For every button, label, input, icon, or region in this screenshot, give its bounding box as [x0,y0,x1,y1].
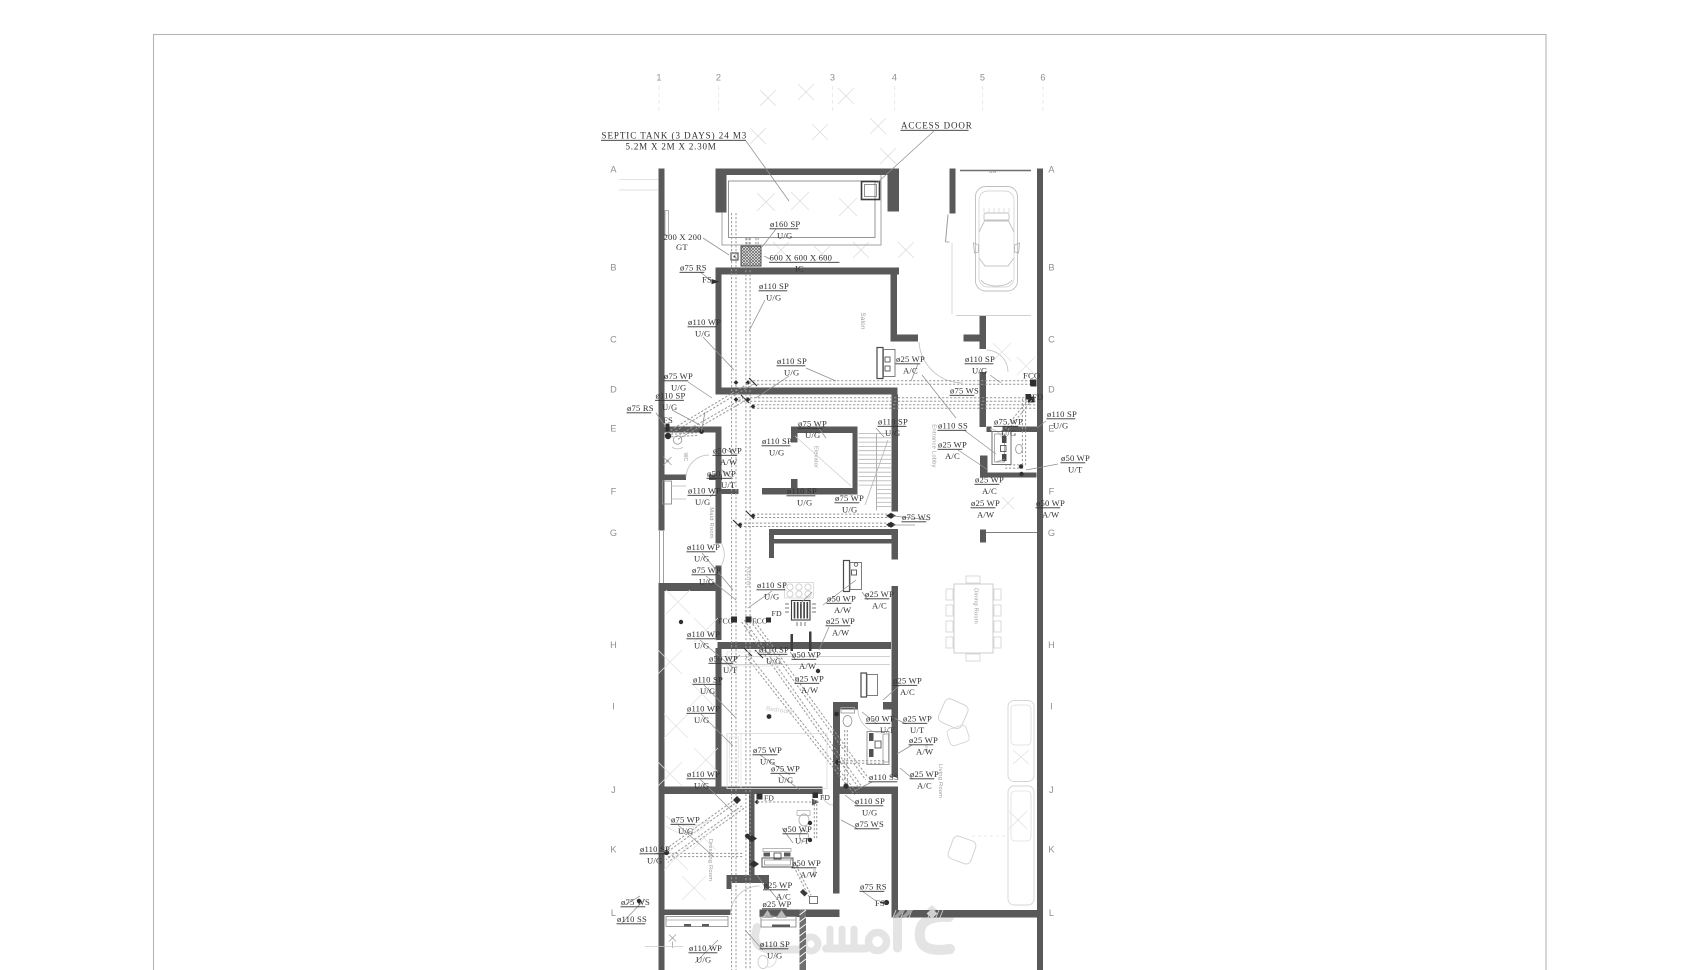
svg-text:A/W: A/W [832,628,850,638]
svg-text:3: 3 [830,73,835,83]
svg-text:J: J [1049,785,1054,795]
svg-text:U/G: U/G [778,775,793,785]
svg-text:ø110 SP: ø110 SP [759,645,789,655]
svg-text:Salon: Salon [859,312,866,330]
svg-text:ø110 WP: ø110 WP [687,769,720,779]
svg-text:ø50 WP: ø50 WP [783,824,812,834]
svg-text:U/G: U/G [777,231,792,241]
svg-text:A/W: A/W [799,661,817,671]
svg-text:ø110 SP: ø110 SP [640,844,670,854]
svg-text:ø50 WP: ø50 WP [827,594,856,604]
svg-text:ø75 WP: ø75 WP [664,371,693,381]
svg-text:G: G [1048,528,1055,538]
svg-text:WC: WC [682,453,688,462]
svg-text:U/G: U/G [972,366,987,376]
svg-text:6: 6 [1040,73,1045,83]
svg-text:ø110 SP: ø110 SP [855,796,885,806]
svg-text:FCO: FCO [752,617,768,626]
svg-text:U/G: U/G [694,715,709,725]
svg-text:I: I [1050,702,1053,712]
svg-text:D: D [1048,385,1055,395]
svg-text:I: I [612,702,615,712]
svg-text:U/G: U/G [766,293,781,303]
svg-text:A/C: A/C [945,451,960,461]
svg-text:U/T: U/T [723,665,738,675]
svg-text:FS: FS [875,898,885,908]
svg-text:ø50 WP: ø50 WP [1036,498,1065,508]
svg-text:ø25 WP: ø25 WP [795,674,824,684]
svg-text:Entrance Lobby: Entrance Lobby [931,424,937,467]
svg-text:ø50 WP: ø50 WP [709,654,738,664]
svg-text:ø110 SS: ø110 SS [869,772,899,782]
svg-text:ø75 RS: ø75 RS [680,263,707,273]
svg-text:H: H [610,640,617,650]
svg-text:FCO: FCO [1023,371,1040,381]
svg-text:U/G: U/G [1001,428,1016,438]
svg-text:U/G: U/G [767,951,782,961]
svg-text:U/G: U/G [862,808,877,818]
svg-text:A/C: A/C [872,601,887,611]
svg-text:ø110 WP: ø110 WP [687,704,720,714]
svg-text:200 X 200: 200 X 200 [664,232,702,242]
svg-text:SEPTIC TANK (3 DAYS) 24 M3: SEPTIC TANK (3 DAYS) 24 M3 [602,131,748,141]
svg-text:ø110 WP: ø110 WP [688,317,721,327]
svg-text:ø25 WP: ø25 WP [893,676,922,686]
svg-text:A/C: A/C [903,366,918,376]
svg-text:ø25 WP: ø25 WP [896,354,925,364]
svg-text:GT: GT [676,242,688,252]
svg-text:ø50 WP: ø50 WP [792,858,821,868]
svg-text:A: A [1048,165,1055,175]
svg-text:U/T: U/T [1068,465,1083,475]
svg-text:Dining Room: Dining Room [973,588,979,624]
svg-text:ø25 WP: ø25 WP [763,899,792,909]
svg-text:J: J [611,785,616,795]
svg-text:C: C [1048,335,1055,345]
svg-text:ø110 SP: ø110 SP [1047,409,1077,419]
svg-text:ø110 SP: ø110 SP [656,391,686,401]
svg-text:ø160 SP: ø160 SP [770,219,800,229]
svg-text:ø75 WS: ø75 WS [855,819,884,829]
svg-text:5.2M X 2M X 2.30M: 5.2M X 2M X 2.30M [626,142,717,152]
svg-text:U/G: U/G [769,448,784,458]
svg-text:ø75 WP: ø75 WP [835,493,864,503]
svg-text:U/G: U/G [696,955,711,965]
svg-text:B: B [1048,263,1054,273]
svg-text:U/G: U/G [695,329,710,339]
svg-text:A/W: A/W [834,605,852,615]
svg-text:ø50 WP: ø50 WP [1061,453,1090,463]
svg-text:D: D [610,385,617,395]
svg-text:ø25 WP: ø25 WP [826,616,855,626]
svg-text:U/G: U/G [662,402,677,412]
svg-text:2: 2 [716,73,721,83]
svg-text:ø50 WP: ø50 WP [866,714,895,724]
svg-text:ø75 WS: ø75 WS [950,386,979,396]
svg-text:U/G: U/G [766,656,781,666]
svg-text:5: 5 [980,73,985,83]
svg-text:ø50 WP: ø50 WP [707,469,736,479]
svg-text:1: 1 [656,73,661,83]
svg-text:U/G: U/G [695,497,710,507]
svg-text:U/G: U/G [784,368,799,378]
svg-text:ø50 WP: ø50 WP [792,650,821,660]
svg-text:U/G: U/G [1053,421,1068,431]
svg-text:U/G: U/G [885,428,900,438]
svg-text:ø50 WP: ø50 WP [713,446,742,456]
svg-text:ø110 SP: ø110 SP [777,356,807,366]
svg-text:L: L [611,908,616,918]
svg-text:ø25 WP: ø25 WP [971,498,1000,508]
svg-text:Kitchen: Kitchen [745,567,751,588]
svg-text:U/T: U/T [880,725,895,735]
svg-text:A/W: A/W [1042,510,1060,520]
svg-text:ACCESS DOOR: ACCESS DOOR [901,121,973,131]
svg-text:ø110 WP: ø110 WP [687,629,720,639]
svg-text:L: L [1049,908,1054,918]
svg-text:A/W: A/W [916,747,934,757]
svg-text:A: A [610,165,617,175]
svg-text:A/C: A/C [917,781,932,791]
svg-text:ø110 SP: ø110 SP [760,939,790,949]
svg-text:ø75 RS: ø75 RS [627,403,654,413]
svg-text:FD: FD [1032,392,1043,402]
svg-text:FD: FD [764,794,774,803]
svg-text:A/W: A/W [720,457,738,467]
svg-text:ø110 SP: ø110 SP [878,417,908,427]
svg-text:ø110 SP: ø110 SP [759,281,789,291]
svg-text:U/T: U/T [795,836,810,846]
svg-text:ø75 WP: ø75 WP [771,764,800,774]
svg-text:U/G: U/G [647,856,662,866]
svg-text:ø110 WP: ø110 WP [689,943,722,953]
svg-text:K: K [1048,845,1055,855]
svg-text:U/G: U/G [797,498,812,508]
svg-text:A/W: A/W [800,870,818,880]
svg-text:ø75 WS: ø75 WS [902,512,931,522]
svg-text:FCO: FCO [718,617,734,626]
svg-text:E: E [610,424,616,434]
svg-text:ø75 WP: ø75 WP [798,419,827,429]
svg-text:GN: GN [989,169,996,174]
svg-text:U/G: U/G [678,826,693,836]
svg-text:U/G: U/G [699,577,714,587]
svg-text:A/W: A/W [801,685,819,695]
svg-text:FS: FS [663,415,673,425]
svg-text:G: G [610,528,617,538]
svg-text:C: C [610,335,617,345]
svg-text:ø110 SP: ø110 SP [965,354,995,364]
svg-text:ø110 SP: ø110 SP [762,436,792,446]
svg-text:ø75 WS: ø75 WS [621,897,650,907]
svg-text:ø25 WP: ø25 WP [865,589,894,599]
svg-text:ø110 WP: ø110 WP [687,542,720,552]
svg-text:ø75 WP: ø75 WP [692,565,721,575]
svg-text:U/G: U/G [694,781,709,791]
svg-text:A/W: A/W [765,914,775,919]
svg-text:ø110 SP: ø110 SP [693,675,723,685]
svg-text:U/T: U/T [721,480,736,490]
svg-text:Elevator: Elevator [813,446,819,468]
svg-text:ø25 WP: ø25 WP [909,735,938,745]
svg-text:U/G: U/G [700,686,715,696]
svg-text:ø25 WP: ø25 WP [910,769,939,779]
svg-text:U/G: U/G [842,505,857,515]
svg-text:ø110 SP: ø110 SP [787,486,817,496]
svg-text:U/G: U/G [694,641,709,651]
svg-text:U/G: U/G [764,592,779,602]
svg-text:ø25 WP: ø25 WP [764,880,793,890]
svg-text:A/C: A/C [900,687,915,697]
svg-text:ø25 WP: ø25 WP [938,440,967,450]
svg-text:B: B [610,263,616,273]
svg-text:ø75 RS: ø75 RS [860,882,887,892]
svg-text:FS: FS [702,275,712,285]
svg-text:A/C: A/C [982,486,997,496]
svg-text:ø75 WP: ø75 WP [671,815,700,825]
svg-text:600 X 600 X 600: 600 X 600 X 600 [770,253,833,263]
svg-text:U/G: U/G [694,554,709,564]
svg-text:F: F [611,487,617,497]
svg-text:ø25 WP: ø25 WP [903,714,932,724]
svg-text:ø25 WP: ø25 WP [975,475,1004,485]
svg-text:FD: FD [772,609,783,618]
svg-text:ø75 WP: ø75 WP [994,417,1023,427]
svg-text:ø75 WP: ø75 WP [753,745,782,755]
svg-text:ø110 WP: ø110 WP [688,486,721,496]
svg-text:U/T: U/T [910,725,925,735]
svg-text:Maid Room: Maid Room [708,507,714,538]
svg-text:IC: IC [795,264,804,274]
svg-text:ø110 SS: ø110 SS [617,914,647,924]
svg-text:Dressing Room: Dressing Room [707,839,713,882]
svg-text:ø110 SS: ø110 SS [938,421,968,431]
svg-text:U/G: U/G [805,430,820,440]
svg-text:ø110 SP: ø110 SP [757,580,787,590]
svg-text:K: K [610,845,617,855]
svg-text:FD: FD [820,793,830,802]
svg-text:4: 4 [892,73,897,83]
svg-text:A/W: A/W [977,510,995,520]
svg-text:F: F [1049,487,1055,497]
svg-text:H: H [1048,640,1055,650]
